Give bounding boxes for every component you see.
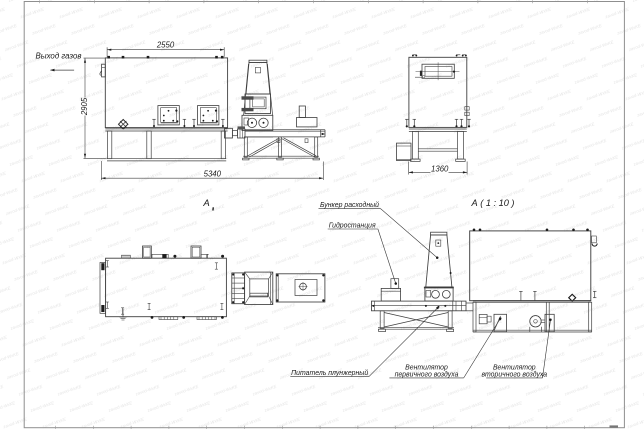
svg-text:zavod-WxKE: zavod-WxKE [0,23,18,36]
svg-text:zavod-WxKE: zavod-WxKE [0,121,10,134]
svg-text:zavod-WxKE: zavod-WxKE [418,236,444,249]
svg-text:zavod-WxKE: zavod-WxKE [196,252,222,265]
svg-text:А ( 1 : 10 ): А ( 1 : 10 ) [471,198,515,208]
svg-text:zavod-WxKE: zavod-WxKE [168,269,194,282]
svg-text:zavod-WxKE: zavod-WxKE [539,351,565,364]
svg-text:zavod-WxKE: zavod-WxKE [40,252,66,265]
svg-text:zavod-WxKE: zavod-WxKE [0,170,7,183]
svg-text:zavod-WxKE: zavod-WxKE [152,138,178,151]
svg-text:zavod-WxKE: zavod-WxKE [300,72,326,85]
svg-text:zavod-WxKE: zavod-WxKE [518,105,544,118]
svg-text:zavod-WxKE: zavod-WxKE [614,400,640,413]
svg-text:zavod-WxKE: zavod-WxKE [440,105,466,118]
svg-text:zavod-WxKE: zavod-WxKE [148,187,174,200]
svg-text:zavod-WxKE: zavod-WxKE [606,334,632,347]
svg-text:zavod-WxKE: zavod-WxKE [627,39,644,52]
svg-text:zavod-WxKE: zavod-WxKE [0,400,16,413]
svg-text:zavod-WxKE: zavod-WxKE [108,23,134,36]
svg-text:zavod-WxKE: zavod-WxKE [547,252,573,265]
svg-text:zavod-WxKE: zavod-WxKE [629,367,644,380]
svg-text:zavod-WxKE: zavod-WxKE [555,318,581,331]
svg-text:zavod-WxKE: zavod-WxKE [581,138,607,151]
svg-text:zavod-WxKE: zavod-WxKE [639,56,644,69]
svg-text:zavod-WxKE: zavod-WxKE [504,302,530,315]
svg-text:zavod-WxKE: zavod-WxKE [56,384,82,397]
svg-text:zavod-WxKE: zavod-WxKE [308,138,334,151]
svg-text:zavod-WxKE: zavod-WxKE [239,367,265,380]
svg-text:zavod-WxKE: zavod-WxKE [97,6,123,19]
svg-text:zavod-WxKE: zavod-WxKE [550,203,576,216]
svg-text:zavod-WxKE: zavod-WxKE [50,105,76,118]
svg-text:zavod-WxKE: zavod-WxKE [59,170,85,183]
svg-text:zavod-WxKE: zavod-WxKE [117,88,143,101]
svg-text:zavod-WxKE: zavod-WxKE [586,252,612,265]
svg-text:zavod-WxKE: zavod-WxKE [500,351,526,364]
svg-text:zavod-WxKE: zavod-WxKE [126,318,152,331]
svg-text:zavod-WxKE: zavod-WxKE [290,384,316,397]
svg-text:zavod-WxKE: zavod-WxKE [89,105,115,118]
svg-text:zavod-WxKE: zavod-WxKE [604,6,630,19]
svg-text:zavod-WxKE: zavod-WxKE [557,105,583,118]
svg-text:zavod-WxKE: zavod-WxKE [421,187,447,200]
svg-text:zavod-WxKE: zavod-WxKE [563,384,589,397]
svg-text:zavod-WxKE: zavod-WxKE [464,138,490,151]
svg-text:zavod-WxKE: zavod-WxKE [146,400,172,413]
svg-text:zavod-WxKE: zavod-WxKE [366,56,392,69]
svg-text:zavod-WxKE: zavod-WxKE [75,302,101,315]
svg-text:zavod-WxKE: zavod-WxKE [312,88,338,101]
svg-text:zavod-WxKE: zavod-WxKE [0,88,26,101]
svg-text:zavod-WxKE: zavod-WxKE [608,121,634,134]
svg-text:zavod-WxKE: zavod-WxKE [285,269,311,282]
svg-text:zavod-WxKE: zavod-WxKE [230,138,256,151]
svg-text:2550: 2550 [156,41,175,50]
svg-text:zavod-WxKE: zavod-WxKE [48,318,74,331]
svg-text:zavod-WxKE: zavod-WxKE [63,285,89,298]
svg-text:первичного воздуха: первичного воздуха [395,371,459,379]
svg-text:zavod-WxKE: zavod-WxKE [62,121,88,134]
svg-text:zavod-WxKE: zavod-WxKE [527,170,553,183]
svg-text:zavod-WxKE: zavod-WxKE [176,170,202,183]
svg-text:zavod-WxKE: zavod-WxKE [106,236,132,249]
svg-text:zavod-WxKE: zavod-WxKE [87,318,113,331]
svg-text:zavod-WxKE: zavod-WxKE [223,236,249,249]
svg-text:zavod-WxKE: zavod-WxKE [382,187,408,200]
svg-text:zavod-WxKE: zavod-WxKE [207,269,233,282]
svg-text:zavod-WxKE: zavod-WxKE [107,400,133,413]
svg-text:zavod-WxKE: zavod-WxKE [186,23,212,36]
svg-text:zavod-WxKE: zavod-WxKE [27,72,53,85]
svg-text:zavod-WxKE: zavod-WxKE [344,351,370,364]
svg-text:zavod-WxKE: zavod-WxKE [253,6,279,19]
svg-text:zavod-WxKE: zavod-WxKE [276,39,302,52]
svg-text:zavod-WxKE: zavod-WxKE [528,334,554,347]
svg-text:zavod-WxKE: zavod-WxKE [265,187,291,200]
svg-text:zavod-WxKE: zavod-WxKE [133,220,159,233]
svg-text:zavod-WxKE: zavod-WxKE [549,39,575,52]
svg-text:zavod-WxKE: zavod-WxKE [485,384,511,397]
svg-text:zavod-WxKE: zavod-WxKE [507,88,533,101]
svg-text:zavod-WxKE: zavod-WxKE [469,252,495,265]
svg-text:Гидростанция: Гидростанция [329,222,376,230]
svg-text:zavod-WxKE: zavod-WxKE [262,236,288,249]
svg-text:zavod-WxKE: zavod-WxKE [44,367,70,380]
svg-text:zavod-WxKE: zavod-WxKE [605,170,631,183]
svg-text:zavod-WxKE: zavod-WxKE [616,187,642,200]
svg-text:zavod-WxKE: zavod-WxKE [177,334,203,347]
svg-text:zavod-WxKE: zavod-WxKE [222,72,248,85]
svg-text:zavod-WxKE: zavod-WxKE [293,170,319,183]
svg-text:zavod-WxKE: zavod-WxKE [264,23,290,36]
svg-text:zavod-WxKE: zavod-WxKE [99,334,125,347]
svg-text:zavod-WxKE: zavod-WxKE [538,187,564,200]
svg-text:zavod-WxKE: zavod-WxKE [68,400,94,413]
svg-text:zavod-WxKE: zavod-WxKE [495,72,521,85]
svg-text:zavod-WxKE: zavod-WxKE [342,23,368,36]
svg-text:zavod-WxKE: zavod-WxKE [534,72,560,85]
svg-text:zavod-WxKE: zavod-WxKE [530,121,556,134]
svg-text:zavod-WxKE: zavod-WxKE [585,88,611,101]
svg-text:zavod-WxKE: zavod-WxKE [394,203,420,216]
svg-text:zavod-WxKE: zavod-WxKE [227,351,253,364]
svg-text:zavod-WxKE: zavod-WxKE [368,384,394,397]
svg-text:zavod-WxKE: zavod-WxKE [409,6,435,19]
svg-text:zavod-WxKE: zavod-WxKE [0,285,11,298]
svg-text:zavod-WxKE: zavod-WxKE [609,285,635,298]
svg-text:zavod-WxKE: zavod-WxKE [292,6,318,19]
svg-text:zavod-WxKE: zavod-WxKE [173,384,199,397]
svg-text:zavod-WxKE: zavod-WxKE [565,6,591,19]
svg-text:zavod-WxKE: zavod-WxKE [456,72,482,85]
svg-text:zavod-WxKE: zavod-WxKE [114,302,140,315]
svg-text:zavod-WxKE: zavod-WxKE [81,39,107,52]
svg-text:zavod-WxKE: zavod-WxKE [172,220,198,233]
svg-text:zavod-WxKE: zavod-WxKE [212,384,238,397]
svg-text:zavod-WxKE: zavod-WxKE [4,203,30,216]
svg-text:zavod-WxKE: zavod-WxKE [625,252,644,265]
svg-text:zavod-WxKE: zavod-WxKE [524,384,550,397]
svg-text:zavod-WxKE: zavod-WxKE [487,6,513,19]
svg-text:zavod-WxKE: zavod-WxKE [496,236,522,249]
svg-text:zavod-WxKE: zavod-WxKE [339,72,365,85]
svg-text:zavod-WxKE: zavod-WxKE [348,302,374,315]
svg-text:zavod-WxKE: zavod-WxKE [153,302,179,315]
svg-text:zavod-WxKE: zavod-WxKE [109,187,135,200]
svg-text:zavod-WxKE: zavod-WxKE [450,334,476,347]
svg-text:zavod-WxKE: zavod-WxKE [226,187,252,200]
svg-text:zavod-WxKE: zavod-WxKE [195,88,221,101]
svg-text:zavod-WxKE: zavod-WxKE [315,39,341,52]
svg-text:zavod-WxKE: zavod-WxKE [160,203,186,216]
svg-text:zavod-WxKE: zavod-WxKE [0,384,4,397]
svg-text:zavod-WxKE: zavod-WxKE [491,121,517,134]
svg-text:zavod-WxKE: zavod-WxKE [284,105,310,118]
svg-text:zavod-WxKE: zavod-WxKE [461,351,487,364]
svg-text:zavod-WxKE: zavod-WxKE [320,154,346,167]
svg-text:zavod-WxKE: zavod-WxKE [305,351,331,364]
svg-text:zavod-WxKE: zavod-WxKE [597,269,623,282]
svg-text:zavod-WxKE: zavod-WxKE [69,23,95,36]
svg-text:zavod-WxKE: zavod-WxKE [615,23,641,36]
svg-text:zavod-WxKE: zavod-WxKE [225,23,251,36]
svg-text:zavod-WxKE: zavod-WxKE [407,384,433,397]
svg-text:zavod-WxKE: zavod-WxKE [304,187,330,200]
svg-text:вторичного воздуха: вторичного воздуха [481,371,547,379]
svg-text:zavod-WxKE: zavod-WxKE [17,384,43,397]
svg-text:zavod-WxKE: zavod-WxKE [335,121,361,134]
svg-text:zavod-WxKE: zavod-WxKE [255,334,281,347]
svg-text:zavod-WxKE: zavod-WxKE [590,367,616,380]
svg-text:zavod-WxKE: zavod-WxKE [636,269,644,282]
svg-text:zavod-WxKE: zavod-WxKE [183,72,209,85]
svg-text:zavod-WxKE: zavod-WxKE [258,285,284,298]
svg-text:zavod-WxKE: zavod-WxKE [588,39,614,52]
svg-text:zavod-WxKE: zavod-WxKE [90,269,116,282]
svg-text:zavod-WxKE: zavod-WxKE [296,121,322,134]
svg-text:zavod-WxKE: zavod-WxKE [79,252,105,265]
svg-text:zavod-WxKE: zavod-WxKE [391,252,417,265]
svg-text:zavod-WxKE: zavod-WxKE [635,105,644,118]
svg-text:zavod-WxKE: zavod-WxKE [0,220,3,233]
svg-text:zavod-WxKE: zavod-WxKE [192,302,218,315]
svg-text:zavod-WxKE: zavod-WxKE [465,302,491,315]
svg-text:zavod-WxKE: zavod-WxKE [289,220,315,233]
svg-text:zavod-WxKE: zavod-WxKE [497,400,523,413]
svg-text:zavod-WxKE: zavod-WxKE [313,252,339,265]
svg-text:zavod-WxKE: zavod-WxKE [121,203,147,216]
svg-text:zavod-WxKE: zavod-WxKE [432,39,458,52]
svg-text:zavod-WxKE: zavod-WxKE [1,252,27,265]
svg-text:zavod-WxKE: zavod-WxKE [309,302,335,315]
svg-text:zavod-WxKE: zavod-WxKE [216,334,242,347]
svg-text:zavod-WxKE: zavod-WxKE [374,121,400,134]
svg-text:zavod-WxKE: zavod-WxKE [282,318,308,331]
svg-text:zavod-WxKE: zavod-WxKE [324,269,350,282]
svg-text:zavod-WxKE: zavod-WxKE [257,121,283,134]
svg-text:zavod-WxKE: zavod-WxKE [380,400,406,413]
svg-text:zavod-WxKE: zavod-WxKE [363,269,389,282]
svg-text:zavod-WxKE: zavod-WxKE [582,302,608,315]
svg-text:zavod-WxKE: zavod-WxKE [204,318,230,331]
svg-text:zavod-WxKE: zavod-WxKE [537,23,563,36]
svg-text:zavod-WxKE: zavod-WxKE [422,351,448,364]
svg-text:zavod-WxKE: zavod-WxKE [16,220,42,233]
svg-text:zavod-WxKE: zavod-WxKE [122,367,148,380]
svg-text:zavod-WxKE: zavod-WxKE [441,269,467,282]
svg-text:zavod-WxKE: zavod-WxKE [303,23,329,36]
svg-text:zavod-WxKE: zavod-WxKE [224,400,250,413]
svg-text:zavod-WxKE: zavod-WxKE [359,154,385,167]
svg-text:zavod-WxKE: zavod-WxKE [519,269,545,282]
svg-text:zavod-WxKE: zavod-WxKE [448,6,474,19]
svg-text:zavod-WxKE: zavod-WxKE [24,285,50,298]
svg-text:zavod-WxKE: zavod-WxKE [577,187,603,200]
svg-text:zavod-WxKE: zavod-WxKE [372,334,398,347]
svg-text:zavod-WxKE: zavod-WxKE [214,6,240,19]
svg-text:zavod-WxKE: zavod-WxKE [632,154,644,167]
svg-text:zavod-WxKE: zavod-WxKE [82,203,108,216]
svg-text:zavod-WxKE: zavod-WxKE [575,400,601,413]
svg-text:zavod-WxKE: zavod-WxKE [468,88,494,101]
svg-text:zavod-WxKE: zavod-WxKE [149,351,175,364]
svg-text:zavod-WxKE: zavod-WxKE [43,203,69,216]
svg-text:zavod-WxKE: zavod-WxKE [238,203,264,216]
svg-text:zavod-WxKE: zavod-WxKE [288,56,314,69]
svg-text:zavod-WxKE: zavod-WxKE [297,285,323,298]
svg-text:zavod-WxKE: zavod-WxKE [0,334,8,347]
svg-text:zavod-WxKE: zavod-WxKE [128,105,154,118]
svg-text:zavod-WxKE: zavod-WxKE [8,154,34,167]
svg-text:zavod-WxKE: zavod-WxKE [141,285,167,298]
svg-text:zavod-WxKE: zavod-WxKE [270,302,296,315]
svg-text:zavod-WxKE: zavod-WxKE [633,318,644,331]
svg-text:zavod-WxKE: zavod-WxKE [200,367,226,380]
svg-text:zavod-WxKE: zavod-WxKE [191,138,217,151]
svg-text:zavod-WxKE: zavod-WxKE [254,170,280,183]
svg-text:zavod-WxKE: zavod-WxKE [5,367,31,380]
svg-text:zavod-WxKE: zavod-WxKE [401,105,427,118]
svg-text:zavod-WxKE: zavod-WxKE [433,203,459,216]
svg-text:zavod-WxKE: zavod-WxKE [569,121,595,134]
svg-text:zavod-WxKE: zavod-WxKE [110,351,136,364]
svg-text:zavod-WxKE: zavod-WxKE [589,203,615,216]
svg-text:zavod-WxKE: zavod-WxKE [161,367,187,380]
svg-text:zavod-WxKE: zavod-WxKE [55,220,81,233]
svg-text:zavod-WxKE: zavod-WxKE [613,236,639,249]
svg-text:zavod-WxKE: zavod-WxKE [453,285,479,298]
svg-text:zavod-WxKE: zavod-WxKE [113,138,139,151]
svg-text:zavod-WxKE: zavod-WxKE [51,269,77,282]
svg-text:zavod-WxKE: zavod-WxKE [0,351,20,364]
svg-text:zavod-WxKE: zavod-WxKE [511,203,537,216]
svg-text:zavod-WxKE: zavod-WxKE [156,88,182,101]
svg-text:zavod-WxKE: zavod-WxKE [536,400,562,413]
svg-text:zavod-WxKE: zavod-WxKE [620,138,644,151]
svg-text:zavod-WxKE: zavod-WxKE [118,252,144,265]
svg-text:zavod-WxKE: zavod-WxKE [561,56,587,69]
svg-text:zavod-WxKE: zavod-WxKE [420,23,446,36]
svg-text:zavod-WxKE: zavod-WxKE [347,138,373,151]
svg-text:Вентилятор: Вентилятор [405,365,448,372]
svg-text:zavod-WxKE: zavod-WxKE [594,318,620,331]
svg-text:zavod-WxKE: zavod-WxKE [489,334,515,347]
svg-text:zavod-WxKE: zavod-WxKE [554,154,580,167]
svg-text:2905: 2905 [80,97,89,116]
svg-text:zavod-WxKE: zavod-WxKE [617,351,643,364]
svg-text:zavod-WxKE: zavod-WxKE [102,285,128,298]
svg-text:zavod-WxKE: zavod-WxKE [28,236,54,249]
svg-text:zavod-WxKE: zavod-WxKE [58,6,84,19]
svg-text:zavod-WxKE: zavod-WxKE [175,6,201,19]
svg-text:zavod-WxKE: zavod-WxKE [273,88,299,101]
svg-text:zavod-WxKE: zavod-WxKE [71,351,97,364]
svg-text:zavod-WxKE: zavod-WxKE [446,384,472,397]
svg-text:zavod-WxKE: zavod-WxKE [483,56,509,69]
svg-text:zavod-WxKE: zavod-WxKE [19,6,45,19]
svg-text:zavod-WxKE: zavod-WxKE [375,285,401,298]
svg-text:zavod-WxKE: zavod-WxKE [576,23,602,36]
svg-text:zavod-WxKE: zavod-WxKE [32,351,58,364]
svg-text:zavod-WxKE: zavod-WxKE [383,351,409,364]
svg-text:Питатель плунжерный: Питатель плунжерный [291,369,368,377]
svg-text:zavod-WxKE: zavod-WxKE [510,39,536,52]
svg-text:zavod-WxKE: zavod-WxKE [211,220,237,233]
svg-text:zavod-WxKE: zavod-WxKE [36,302,62,315]
svg-text:zavod-WxKE: zavod-WxKE [0,302,23,315]
svg-text:zavod-WxKE: zavod-WxKE [411,334,437,347]
svg-text:zavod-WxKE: zavod-WxKE [332,170,358,183]
svg-text:zavod-WxKE: zavod-WxKE [29,400,55,413]
svg-text:zavod-WxKE: zavod-WxKE [327,56,353,69]
svg-text:zavod-WxKE: zavod-WxKE [488,170,514,183]
svg-text:zavod-WxKE: zavod-WxKE [83,367,109,380]
svg-text:zavod-WxKE: zavod-WxKE [266,351,292,364]
svg-text:zavod-WxKE: zavod-WxKE [352,252,378,265]
svg-text:zavod-WxKE: zavod-WxKE [566,170,592,183]
svg-text:zavod-WxKE: zavod-WxKE [429,88,455,101]
svg-text:zavod-WxKE: zavod-WxKE [188,351,214,364]
svg-text:zavod-WxKE: zavod-WxKE [551,367,577,380]
svg-text:zavod-WxKE: zavod-WxKE [0,56,2,69]
svg-text:zavod-WxKE: zavod-WxKE [321,318,347,331]
svg-text:zavod-WxKE: zavod-WxKE [351,88,377,101]
svg-text:zavod-WxKE: zavod-WxKE [479,105,505,118]
svg-text:zavod-WxKE: zavod-WxKE [129,269,155,282]
svg-text:zavod-WxKE: zavod-WxKE [30,23,56,36]
svg-text:zavod-WxKE: zavod-WxKE [134,384,160,397]
svg-text:zavod-WxKE: zavod-WxKE [0,6,6,19]
svg-text:zavod-WxKE: zavod-WxKE [67,236,93,249]
svg-text:zavod-WxKE: zavod-WxKE [546,88,572,101]
svg-text:zavod-WxKE: zavod-WxKE [631,0,644,3]
svg-text:zavod-WxKE: zavod-WxKE [206,105,232,118]
svg-text:zavod-WxKE: zavod-WxKE [624,88,644,101]
svg-text:zavod-WxKE: zavod-WxKE [180,285,206,298]
svg-text:zavod-WxKE: zavod-WxKE [274,252,300,265]
svg-text:zavod-WxKE: zavod-WxKE [120,39,146,52]
svg-text:zavod-WxKE: zavod-WxKE [301,236,327,249]
svg-text:zavod-WxKE: zavod-WxKE [12,269,38,282]
svg-text:zavod-WxKE: zavod-WxKE [600,56,626,69]
svg-text:zavod-WxKE: zavod-WxKE [402,269,428,282]
svg-text:zavod-WxKE: zavod-WxKE [522,56,548,69]
svg-text:zavod-WxKE: zavod-WxKE [567,334,593,347]
svg-text:Бункер расходный: Бункер расходный [320,201,379,209]
svg-text:zavod-WxKE: zavod-WxKE [138,334,164,347]
svg-text:1360: 1360 [431,164,449,173]
svg-text:zavod-WxKE: zavod-WxKE [458,400,484,413]
svg-text:zavod-WxKE: zavod-WxKE [558,269,584,282]
svg-text:zavod-WxKE: zavod-WxKE [35,138,61,151]
svg-text:zavod-WxKE: zavod-WxKE [578,351,604,364]
svg-text:zavod-WxKE: zavod-WxKE [243,318,269,331]
svg-text:zavod-WxKE: zavod-WxKE [95,384,121,397]
svg-text:zavod-WxKE: zavod-WxKE [354,39,380,52]
svg-text:zavod-WxKE: zavod-WxKE [535,236,561,249]
svg-text:zavod-WxKE: zavod-WxKE [20,170,46,183]
svg-text:zavod-WxKE: zavod-WxKE [542,138,568,151]
svg-text:zavod-WxKE: zavod-WxKE [251,384,277,397]
svg-text:zavod-WxKE: zavod-WxKE [60,334,86,347]
svg-text:zavod-WxKE: zavod-WxKE [165,318,191,331]
svg-text:zavod-WxKE: zavod-WxKE [386,138,412,151]
svg-text:zavod-WxKE: zavod-WxKE [331,6,357,19]
svg-text:zavod-WxKE: zavod-WxKE [9,318,35,331]
svg-text:zavod-WxKE: zavod-WxKE [362,105,388,118]
svg-text:zavod-WxKE: zavod-WxKE [47,154,73,167]
svg-text:zavod-WxKE: zavod-WxKE [516,318,542,331]
svg-text:zavod-WxKE: zavod-WxKE [445,220,471,233]
